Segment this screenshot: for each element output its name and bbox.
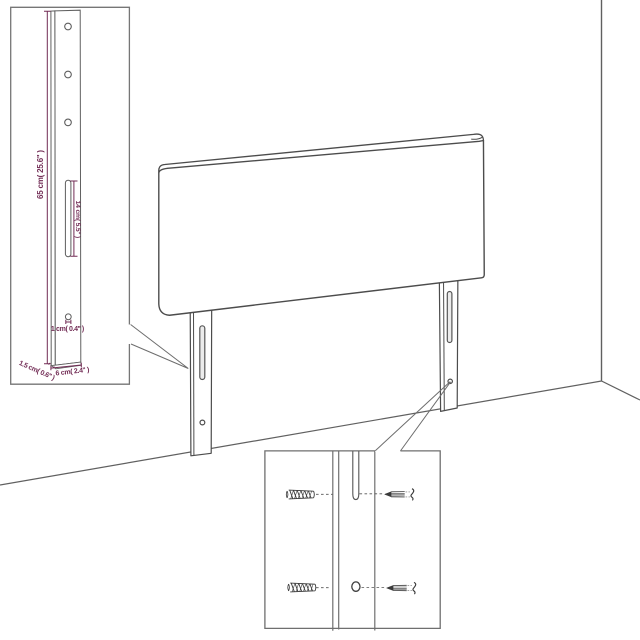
svg-text:14 cm( 5.5'' ): 14 cm( 5.5'' ) [74,201,81,238]
svg-text:65 cm( 25.6'' ): 65 cm( 25.6'' ) [36,150,45,199]
svg-text:1 cm( 0.4'' ): 1 cm( 0.4'' ) [51,326,84,333]
